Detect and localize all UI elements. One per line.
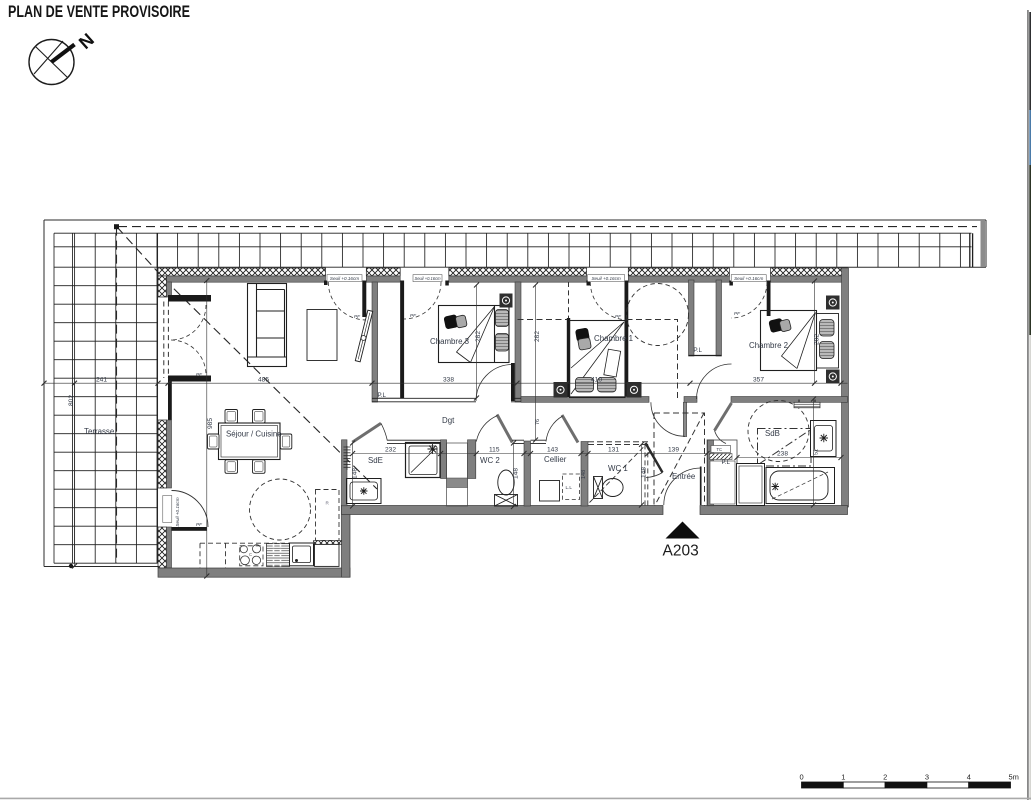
svg-text:C: C bbox=[249, 552, 252, 557]
svg-text:985: 985 bbox=[207, 418, 214, 429]
svg-text:282: 282 bbox=[534, 331, 541, 342]
svg-text:WC 1: WC 1 bbox=[608, 464, 628, 473]
svg-text:Chambre 3: Chambre 3 bbox=[430, 337, 470, 346]
svg-text:Cellier: Cellier bbox=[544, 455, 567, 464]
svg-text:Séjour / Cuisine: Séjour / Cuisine bbox=[226, 430, 282, 439]
svg-text:P.L: P.L bbox=[722, 459, 731, 466]
svg-text:5m: 5m bbox=[1009, 773, 1019, 782]
svg-text:148: 148 bbox=[581, 470, 587, 479]
svg-text:282: 282 bbox=[475, 331, 482, 342]
svg-text:802: 802 bbox=[68, 395, 75, 406]
svg-text:115: 115 bbox=[489, 447, 500, 454]
svg-text:SdE: SdE bbox=[368, 456, 383, 465]
svg-text:148: 148 bbox=[641, 467, 648, 478]
svg-text:Seuil +0.16cm: Seuil +0.16cm bbox=[591, 276, 620, 281]
svg-text:2: 2 bbox=[883, 773, 887, 782]
svg-text:241: 241 bbox=[96, 377, 107, 384]
svg-text:282: 282 bbox=[814, 334, 821, 345]
svg-text:338: 338 bbox=[443, 377, 454, 384]
svg-text:4: 4 bbox=[967, 773, 971, 782]
svg-text:357: 357 bbox=[753, 377, 764, 384]
svg-text:148: 148 bbox=[352, 468, 359, 479]
svg-text:Chambre 1: Chambre 1 bbox=[594, 334, 633, 343]
svg-text:Entrée: Entrée bbox=[672, 472, 696, 481]
svg-text:3: 3 bbox=[925, 773, 929, 782]
svg-text:51: 51 bbox=[814, 449, 820, 455]
svg-text:Seuil +0.16cm: Seuil +0.16cm bbox=[414, 276, 441, 281]
svg-text:232: 232 bbox=[385, 447, 396, 454]
svg-text:A203: A203 bbox=[663, 543, 699, 560]
svg-text:76: 76 bbox=[535, 419, 541, 425]
svg-text:Dgt: Dgt bbox=[442, 416, 455, 425]
svg-text:410: 410 bbox=[591, 377, 602, 384]
svg-text:Seuil +0.16cm: Seuil +0.16cm bbox=[330, 276, 359, 281]
svg-text:0: 0 bbox=[800, 773, 804, 782]
svg-text:PLAN DE VENTE PROVISOIRE: PLAN DE VENTE PROVISOIRE bbox=[8, 3, 190, 21]
svg-text:131: 131 bbox=[608, 447, 619, 454]
svg-text:P.L: P.L bbox=[694, 347, 703, 354]
svg-text:Seuil +0.16cm: Seuil +0.16cm bbox=[175, 497, 180, 526]
svg-text:139: 139 bbox=[668, 447, 679, 454]
svg-text:Chambre 2: Chambre 2 bbox=[749, 341, 788, 350]
svg-text:TC: TC bbox=[717, 447, 723, 452]
svg-text:Seuil +0.16cm: Seuil +0.16cm bbox=[734, 276, 763, 281]
svg-text:485: 485 bbox=[258, 377, 269, 384]
svg-text:238: 238 bbox=[777, 451, 788, 458]
svg-text:Terrasse: Terrasse bbox=[84, 427, 115, 436]
svg-text:L.L: L.L bbox=[566, 485, 573, 490]
svg-text:148: 148 bbox=[513, 468, 520, 479]
svg-text:1: 1 bbox=[841, 773, 845, 782]
svg-text:SdB: SdB bbox=[765, 429, 780, 438]
svg-text:143: 143 bbox=[547, 447, 558, 454]
svg-text:WC 2: WC 2 bbox=[480, 456, 500, 465]
